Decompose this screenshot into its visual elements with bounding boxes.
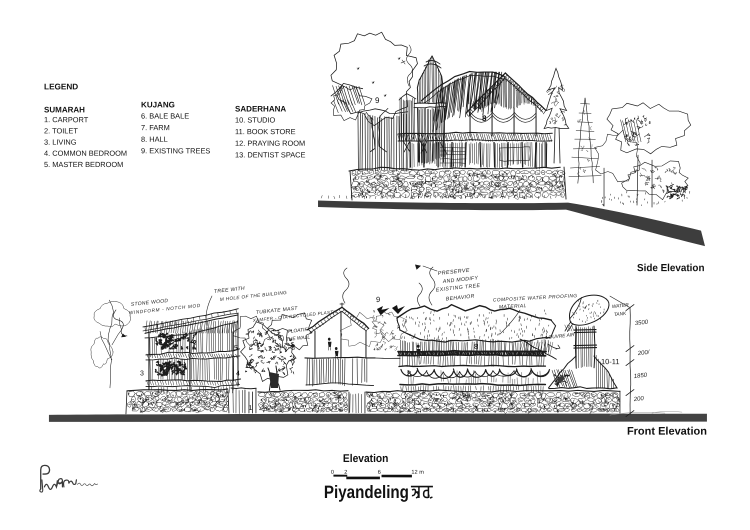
svg-text:13. DENTIST SPACE: 13. DENTIST SPACE — [235, 150, 305, 159]
svg-text:2: 2 — [344, 470, 347, 476]
svg-text:11. BOOK STORE: 11. BOOK STORE — [235, 127, 296, 136]
svg-text:9: 9 — [376, 295, 380, 304]
svg-text:3. LIVING: 3. LIVING — [44, 138, 77, 147]
svg-text:200: 200 — [633, 396, 645, 403]
svg-text:6. BALE BALE: 6. BALE BALE — [141, 112, 189, 121]
svg-text:4: 4 — [236, 370, 240, 377]
svg-text:8: 8 — [407, 369, 411, 378]
svg-text:8. HALL: 8. HALL — [141, 135, 168, 144]
svg-text:1: 1 — [248, 405, 252, 412]
svg-text:8: 8 — [474, 342, 478, 351]
svg-text:6: 6 — [378, 470, 381, 476]
svg-text:2. TOILET: 2. TOILET — [44, 126, 78, 135]
svg-text:KUJANG: KUJANG — [141, 100, 175, 109]
svg-text:12. PRAYING ROOM: 12. PRAYING ROOM — [235, 139, 305, 148]
svg-text:SUMARAH: SUMARAH — [44, 105, 85, 114]
svg-text:LEGEND: LEGEND — [44, 82, 78, 91]
svg-text:Side Elevation: Side Elevation — [637, 263, 705, 274]
svg-text:SADERHANA: SADERHANA — [235, 104, 286, 113]
svg-text:Piyandeling: Piyandeling — [324, 482, 409, 502]
svg-text:5: 5 — [234, 345, 238, 352]
svg-text:9. EXISTING TREES: 9. EXISTING TREES — [141, 146, 210, 155]
svg-text:Elevation: Elevation — [343, 453, 389, 465]
svg-text:10-11: 10-11 — [601, 357, 620, 366]
svg-text:9: 9 — [375, 96, 380, 105]
svg-text:10. STUDIO: 10. STUDIO — [235, 116, 276, 125]
svg-text:Front Elevation: Front Elevation — [627, 426, 707, 438]
svg-text:5. MASTER BEDROOM: 5. MASTER BEDROOM — [44, 160, 123, 169]
svg-text:1. CARPORT: 1. CARPORT — [44, 115, 89, 124]
svg-text:4. COMMON BEDROOM: 4. COMMON BEDROOM — [44, 149, 127, 158]
svg-text:0: 0 — [331, 470, 334, 476]
svg-text:3: 3 — [140, 370, 144, 377]
svg-text:12 m: 12 m — [411, 470, 424, 476]
svg-text:7. FARM: 7. FARM — [141, 123, 170, 132]
